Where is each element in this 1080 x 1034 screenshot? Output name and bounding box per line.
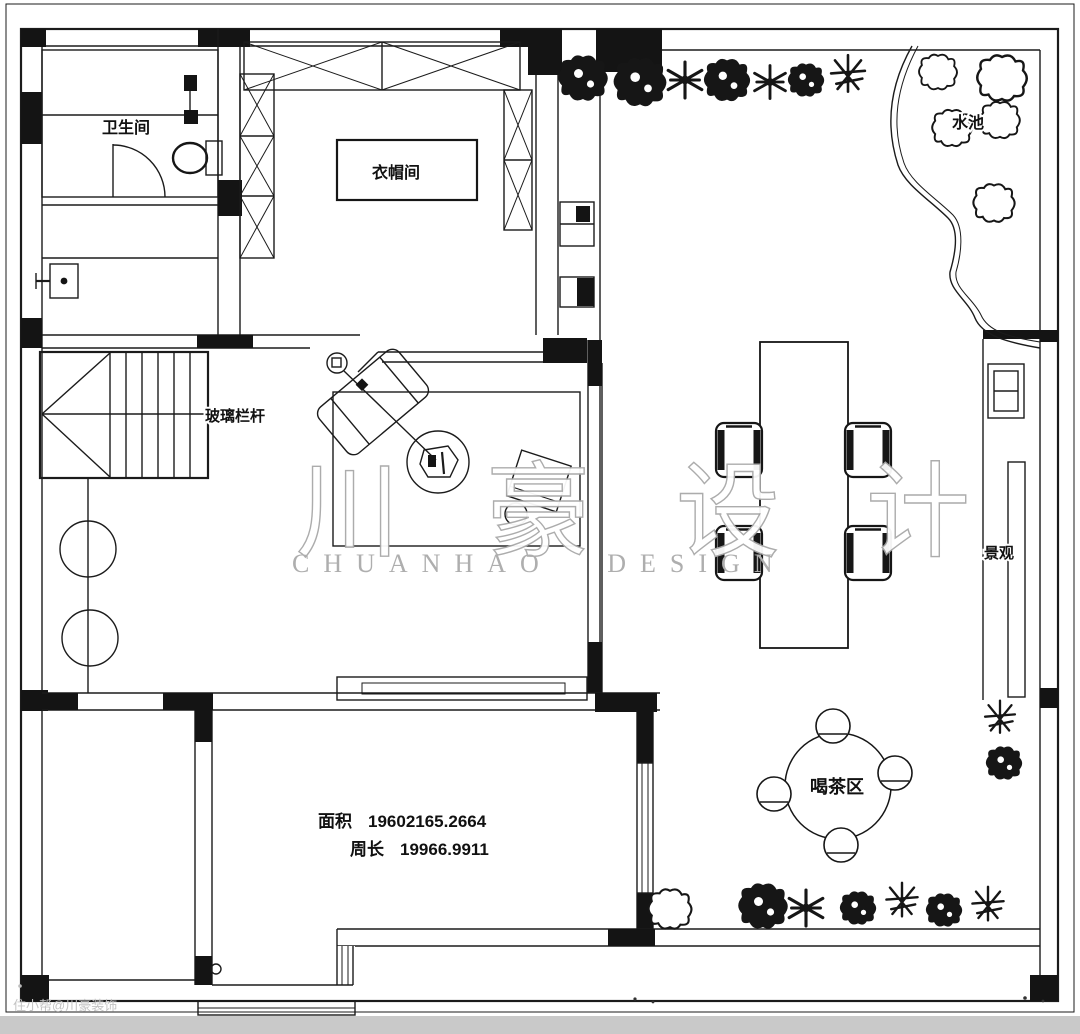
hall-planters [60, 478, 118, 693]
plumbing-fixture [184, 75, 197, 91]
bathroom: 卫生间 [42, 50, 222, 258]
area-label: 面积 [318, 812, 352, 831]
plant-icon [972, 887, 1003, 921]
area-value: 19602165.2664 [368, 812, 487, 831]
corner-watermark: 住小帮@川豪装饰 [13, 998, 117, 1013]
tea-stool [757, 777, 791, 811]
plant-icon [973, 184, 1014, 222]
bedroom: 面积 19602165.2664 周长 19966.9911 [195, 710, 1040, 1015]
plant-icon [738, 883, 788, 928]
plant-icon [977, 55, 1027, 100]
tea-stool [824, 828, 858, 862]
plumbing-fixture [184, 110, 198, 124]
plant-icon [755, 66, 786, 99]
stray-dots [633, 996, 1044, 1003]
planter-circle [62, 610, 118, 666]
plant-icon [886, 883, 917, 917]
plant-icon [558, 55, 608, 100]
pond: 水池 [891, 46, 1040, 348]
plant-icon [985, 701, 1015, 733]
planter-strip [1008, 462, 1025, 697]
staircase: 玻璃栏杆 [40, 352, 265, 478]
plant-icon [788, 63, 824, 96]
floor-plan-canvas: 卫生间 [0, 0, 1080, 1034]
brand-watermark: 川 豪 设 计 CHUANHAO DESIGN [292, 456, 1000, 578]
cloakroom-label-box: 衣帽间 [337, 140, 477, 200]
bay-window [337, 677, 587, 700]
perimeter-value: 19966.9911 [400, 840, 489, 859]
watermark-en: CHUANHAO DESIGN [292, 549, 787, 578]
toilet-icon [173, 141, 222, 175]
floor-plan-page: 卫生间 [0, 0, 1080, 1034]
cloakroom-label: 衣帽间 [372, 163, 420, 182]
wardrobe-right [504, 90, 532, 230]
entry-steps [198, 1001, 355, 1015]
tea-stool [816, 709, 850, 743]
mid-wall [42, 335, 587, 363]
stair-direction-arrow [42, 353, 110, 477]
plant-icon [789, 890, 823, 926]
bedroom-window-bottom [335, 946, 355, 985]
bathroom-door [113, 144, 165, 197]
footer-bar [0, 1016, 1080, 1034]
tea-area-label: 喝茶区 [810, 776, 864, 797]
dot [18, 984, 22, 988]
tea-stool [878, 756, 912, 790]
cloakroom: 衣帽间 [218, 29, 558, 348]
railing-label: 玻璃栏杆 [205, 407, 265, 425]
pond-label: 水池 [952, 113, 984, 132]
tea-area: 喝茶区 [757, 709, 912, 862]
plant-icon [919, 55, 957, 90]
grill-fixture [988, 364, 1024, 418]
measurement-text: 面积 19602165.2664 周长 19966.9911 [318, 812, 489, 859]
plant-icon [926, 893, 962, 926]
bathroom-label: 卫生间 [102, 118, 150, 137]
wardrobe-top [244, 42, 520, 90]
wardrobe-left [240, 74, 274, 258]
plant-icon [980, 102, 1020, 138]
lower-wall-band [42, 693, 660, 712]
plant-icon [668, 62, 702, 98]
lamp-symbol [327, 353, 436, 460]
plant-icon [614, 58, 667, 106]
plant-icon [986, 746, 1022, 779]
plant-icon [704, 59, 750, 101]
plant-icon [840, 891, 876, 924]
plant-icon [831, 55, 865, 91]
bedroom-window-right [635, 763, 655, 893]
plant-icon [649, 889, 692, 928]
perimeter-label: 周长 [350, 839, 385, 859]
